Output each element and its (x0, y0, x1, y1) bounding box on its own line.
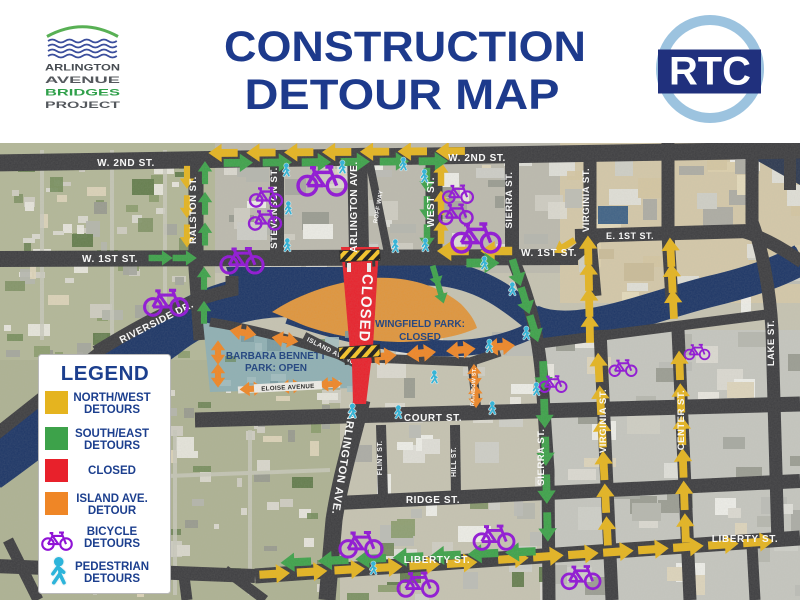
svg-text:CLOSED: CLOSED (88, 465, 136, 477)
svg-text:PEDESTRIAN: PEDESTRIAN (75, 561, 149, 573)
svg-text:DETOUR MAP: DETOUR MAP (245, 71, 560, 119)
svg-text:RTC: RTC (669, 50, 751, 94)
svg-text:SOUTH/EAST: SOUTH/EAST (75, 428, 149, 440)
svg-text:AVENUE: AVENUE (45, 75, 120, 85)
svg-text:BICYCLE: BICYCLE (87, 526, 138, 538)
svg-text:ISLAND AVE.: ISLAND AVE. (76, 493, 148, 505)
svg-text:LEGEND: LEGEND (61, 362, 149, 385)
svg-text:DETOUR: DETOUR (88, 505, 137, 517)
svg-text:CONSTRUCTION: CONSTRUCTION (224, 23, 586, 71)
svg-text:PROJECT: PROJECT (45, 100, 121, 110)
svg-text:NORTH/WEST: NORTH/WEST (73, 392, 150, 404)
svg-text:DETOURS: DETOURS (84, 573, 140, 585)
svg-text:DETOURS: DETOURS (84, 404, 140, 416)
svg-text:DETOURS: DETOURS (84, 538, 140, 550)
svg-text:DETOURS: DETOURS (84, 440, 140, 452)
svg-text:BRIDGES: BRIDGES (45, 88, 120, 98)
svg-text:ARLINGTON: ARLINGTON (45, 63, 120, 73)
